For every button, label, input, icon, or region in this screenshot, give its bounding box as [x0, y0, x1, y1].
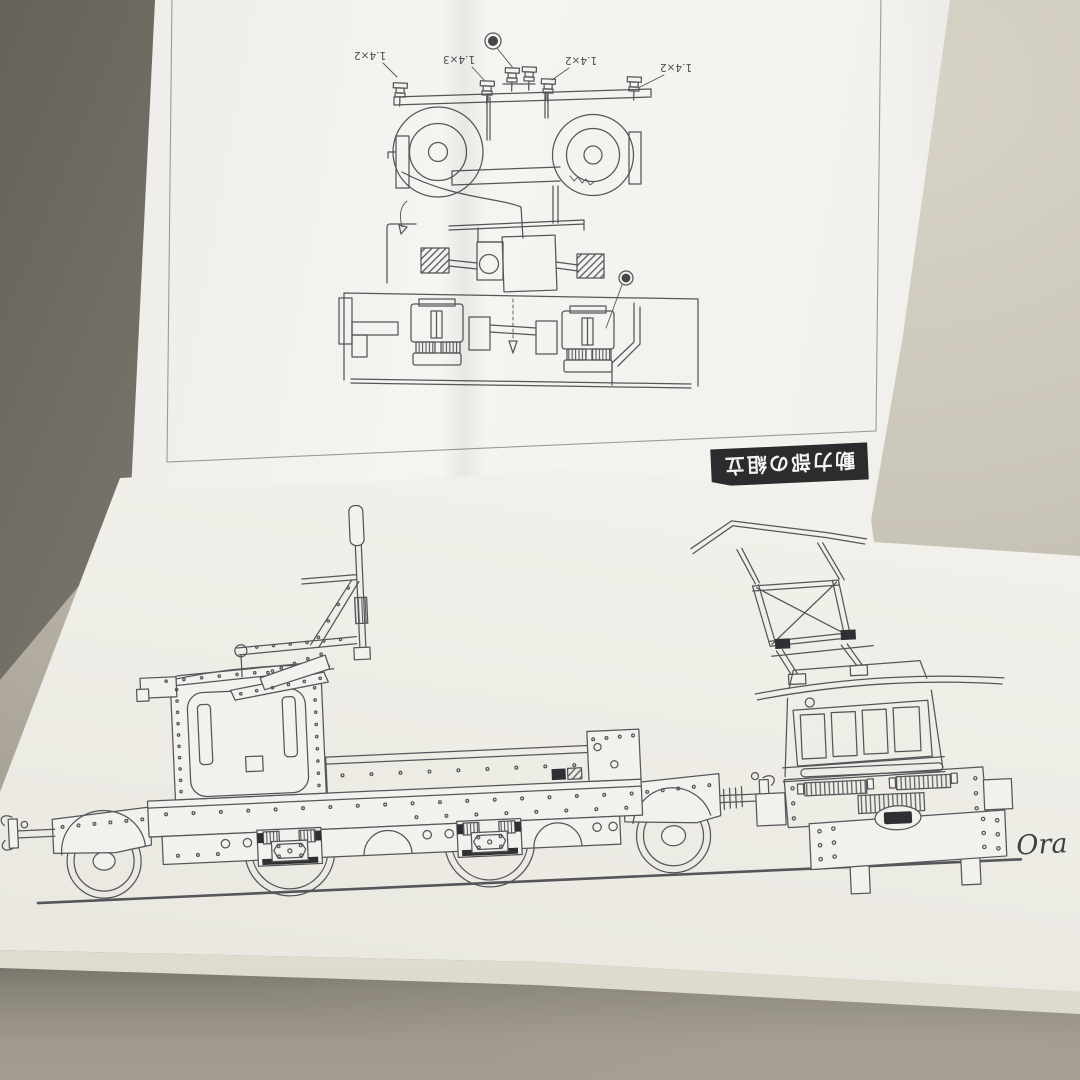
motor-assembly	[421, 220, 604, 292]
part-label: 1.4×3	[443, 53, 475, 65]
axlebox-spring-unit-2	[457, 819, 523, 858]
gearbox-right	[562, 306, 614, 372]
gearbox-left	[411, 299, 463, 365]
bogie-side-view	[388, 92, 641, 238]
bolster-bar-and-screws	[393, 67, 651, 106]
rear-cabinet	[587, 729, 641, 781]
photo-of-instruction-sheets: Ora	[0, 0, 1080, 1080]
front-coupler	[1, 814, 56, 851]
printed-page-border	[167, 0, 881, 462]
ref-marker	[485, 33, 513, 68]
front-wheel-and-fender	[52, 807, 154, 900]
section-label: 動力部の組立	[710, 442, 869, 486]
part-label: 1.4×2	[354, 49, 386, 61]
part-label: 1.4×2	[565, 54, 597, 66]
locomotive-side-view	[0, 487, 778, 908]
retainer-wire-arrow	[387, 201, 416, 283]
ref-marker	[606, 271, 633, 328]
front-windows	[793, 700, 933, 766]
part-label: 1.4×2	[660, 61, 692, 73]
chassis-plan-view	[339, 293, 698, 388]
locomotive-front-view	[690, 509, 1017, 900]
signature: Ora	[1016, 828, 1068, 861]
power-unit-assembly-diagram: 1.4×2 1.4×3 1.4×2 1.4×2	[339, 33, 698, 388]
pantograph-raised	[690, 515, 875, 689]
axlebox-spring-unit-1	[257, 827, 323, 866]
motor-mount-center	[469, 299, 557, 354]
